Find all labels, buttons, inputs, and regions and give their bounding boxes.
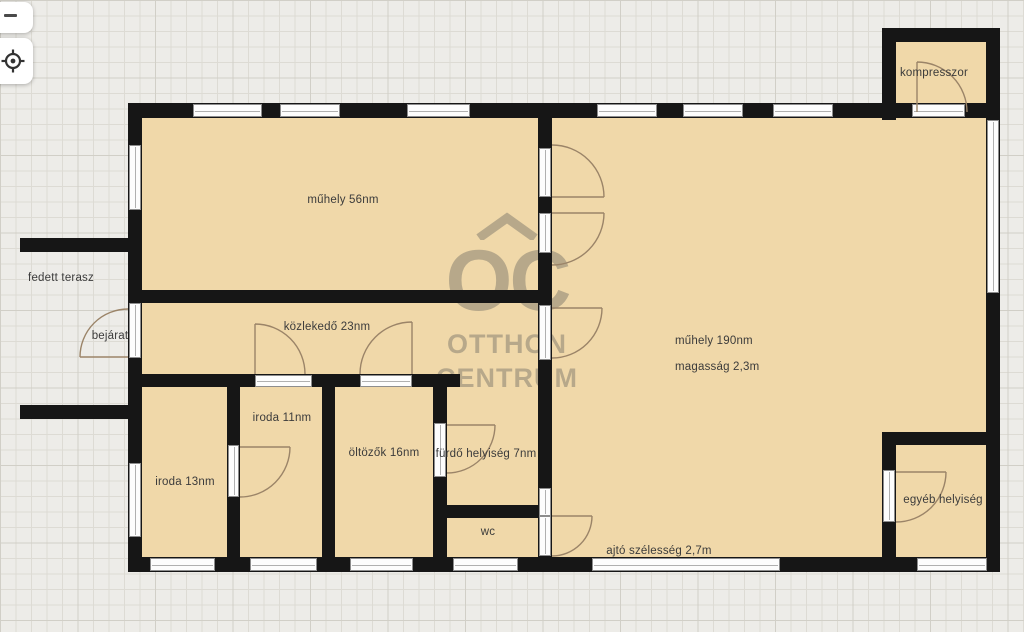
room-label-magassag: magasság 2,3m: [675, 361, 759, 373]
window: [129, 463, 141, 537]
window: [280, 104, 340, 117]
room-label-kompresszor: kompresszor: [900, 67, 968, 79]
label-ajto-szelesseg: ajtó szélesség 2,7m: [606, 545, 711, 557]
window: [250, 558, 317, 571]
window: [129, 145, 141, 210]
door-opening: [228, 445, 239, 497]
room-label-iroda13: iroda 13nm: [155, 476, 215, 488]
label-terasz: fedett terasz: [28, 272, 94, 284]
door-opening: [912, 104, 965, 117]
window: [350, 558, 413, 571]
wall-segment: [20, 238, 128, 252]
window: [539, 488, 551, 516]
room-label-kozlekedo: közlekedő 23nm: [284, 321, 371, 333]
room-label-egyeb: egyéb helyiség: [903, 494, 983, 506]
crosshair-target-icon: [0, 46, 28, 76]
door-opening: [539, 213, 551, 253]
wall-segment: [20, 405, 128, 419]
door-opening: [883, 470, 895, 522]
door-opening: [255, 375, 312, 387]
wall-segment: [986, 28, 1000, 572]
watermark-logo: OC: [436, 238, 578, 324]
room-label-iroda11: iroda 11nm: [253, 412, 312, 424]
window: [683, 104, 743, 117]
zoom-out-button[interactable]: [0, 2, 33, 33]
wall-segment: [447, 505, 539, 518]
label-bejarat: bejárat: [92, 330, 129, 342]
window: [453, 558, 518, 571]
room-label-muhely56: műhely 56nm: [307, 194, 378, 206]
window: [917, 558, 987, 571]
door-opening-wide: [592, 558, 780, 571]
window: [150, 558, 215, 571]
wall-segment: [882, 432, 1000, 445]
room-label-muhely190: műhely 190nm: [675, 335, 753, 347]
minus-icon: [4, 14, 17, 17]
wall-segment: [128, 290, 552, 303]
room-label-wc: wc: [481, 526, 495, 538]
window: [407, 104, 470, 117]
door-opening: [539, 305, 551, 360]
watermark-line1: OTTHON: [436, 331, 578, 358]
wall-segment: [882, 28, 896, 120]
window: [597, 104, 657, 117]
window: [987, 120, 999, 293]
window: [193, 104, 262, 117]
wall-segment: [322, 374, 335, 572]
floorplan-canvas[interactable]: OC OTTHON CENTRUM: [0, 0, 1024, 632]
door-opening-entrance: [129, 303, 141, 358]
door-opening: [539, 516, 551, 556]
wall-segment: [882, 28, 1000, 42]
room-label-oltozok: öltözők 16nm: [349, 447, 420, 459]
room-label-furdo: fürdő helyiség 7nm: [436, 448, 537, 460]
door-opening: [539, 148, 551, 197]
door-opening: [360, 375, 412, 387]
window: [773, 104, 833, 117]
locate-button[interactable]: [0, 38, 33, 84]
